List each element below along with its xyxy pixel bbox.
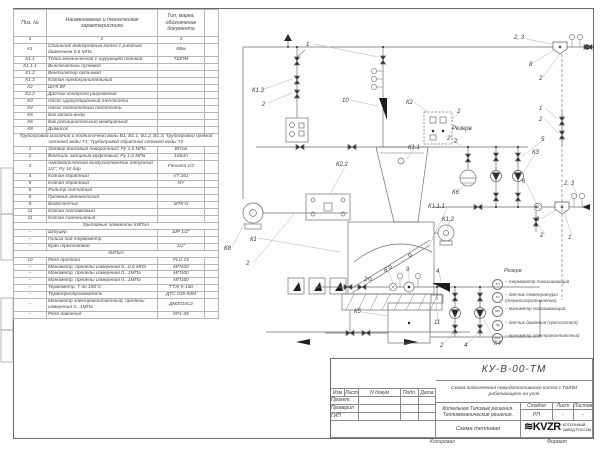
position-label: 2 (538, 117, 543, 123)
margin-cells (1, 168, 13, 362)
doc-code: КУ-В-00-ТМ (436, 359, 593, 381)
sheet-value: - (553, 410, 574, 421)
sign-row-proveril: Проверил (331, 405, 359, 413)
company-line2: ЗАВОД РОССИИ (563, 428, 591, 432)
legend-item: РД– датчик давления (прессостат) (492, 320, 598, 331)
position-label: К2 (406, 100, 414, 106)
position-label: 2 (446, 136, 451, 142)
title-block: Изм Лист N докум Подп. Дата Проект. Пров… (330, 358, 593, 438)
position-label: 1 (306, 42, 309, 48)
instrument-circle-icon: ТП (492, 279, 503, 290)
instrument-circle-icon: МЭ (492, 333, 503, 344)
doc-title: Схема подключения твердотопливного котла… (436, 381, 593, 403)
position-label: 11 (434, 320, 440, 326)
drawing-name: Схема тепловая (436, 421, 521, 438)
position-label: 10 (342, 98, 349, 104)
position-label: 2 (439, 343, 444, 349)
position-label: 2 (456, 109, 461, 115)
position-label: 2, 3 (563, 181, 575, 187)
position-label: К1.1.1 (428, 204, 445, 210)
company-line1: КОТЕЛЬНЫЙ (563, 423, 586, 427)
reserve-legend: Резерв ТП– термометр показывающийТС– дат… (492, 268, 598, 347)
position-label: 2 (539, 233, 544, 239)
footer-format: Формат (547, 439, 567, 445)
position-label: Резерв (452, 126, 472, 132)
legend-title: Резерв (504, 268, 598, 275)
footer-copied-by: Копировал (430, 439, 455, 445)
instrument-circle-icon: РД (492, 320, 503, 331)
position-label: 9 (406, 267, 410, 273)
position-label: К2.2 (336, 162, 349, 168)
position-label: К1.2 (442, 217, 455, 223)
instrument-circle-icon: ТС (492, 292, 503, 303)
stage-value: РП (521, 410, 553, 421)
object-line2: Тепломеханические решения. (443, 412, 513, 418)
position-label: 6 (522, 179, 526, 185)
sign-row-proekt: Проект. (331, 397, 359, 405)
sign-col-list: Лист (345, 389, 359, 397)
sign-col-podp: Подп. (401, 389, 419, 397)
position-label: К1.3 (252, 88, 265, 94)
position-label: 2 (453, 139, 458, 145)
position-label: К8 (224, 246, 232, 252)
legend-item: ТП– термометр показывающий (492, 279, 598, 290)
sheets-value: - (574, 410, 593, 421)
instrument-circle-icon: МП (492, 306, 503, 317)
position-label: К1 (250, 237, 257, 243)
company-logo: ≋KVZR КОТЕЛЬНЫЙ ЗАВОД РОССИИ (521, 421, 592, 434)
position-label: 5 (541, 137, 545, 143)
position-label: 2 (261, 102, 266, 108)
position-label: 1 (568, 235, 571, 241)
position-label: 1 (539, 106, 542, 112)
sheet-label: Лист (553, 403, 574, 410)
sign-col-doc: N докум (359, 389, 401, 397)
sign-row-gip: ГИП (331, 413, 359, 421)
sign-col-data: Дата (419, 389, 436, 397)
position-label: 8 (529, 62, 533, 68)
position-label: 8 (536, 217, 540, 223)
position-label: К5 (354, 309, 362, 315)
position-label: К6 (452, 190, 460, 196)
drawing-sheet: Поз. № Наименование и техническая характ… (0, 0, 600, 450)
legend-item: МП– манометр показывающий (492, 306, 598, 317)
stage-label: Стадия (521, 403, 553, 410)
legend-items: ТП– термометр показывающийТС– датчик тем… (492, 279, 598, 344)
legend-item: ТС– датчик температуры (термосопротивлен… (492, 292, 598, 303)
sheets-label: Листов (574, 403, 593, 410)
position-label: К3 (532, 150, 540, 156)
logo-waves-icon: ≋ (524, 421, 533, 433)
position-label: 2 (245, 261, 250, 267)
sign-col-izm: Изм (331, 389, 345, 397)
legend-item: МЭ– манометр электроконтактный (492, 333, 598, 344)
position-label: 2 (538, 76, 543, 82)
position-label: 2 (363, 277, 368, 283)
position-label: 2, 3 (513, 35, 525, 41)
position-label: К1.1 (408, 145, 420, 151)
